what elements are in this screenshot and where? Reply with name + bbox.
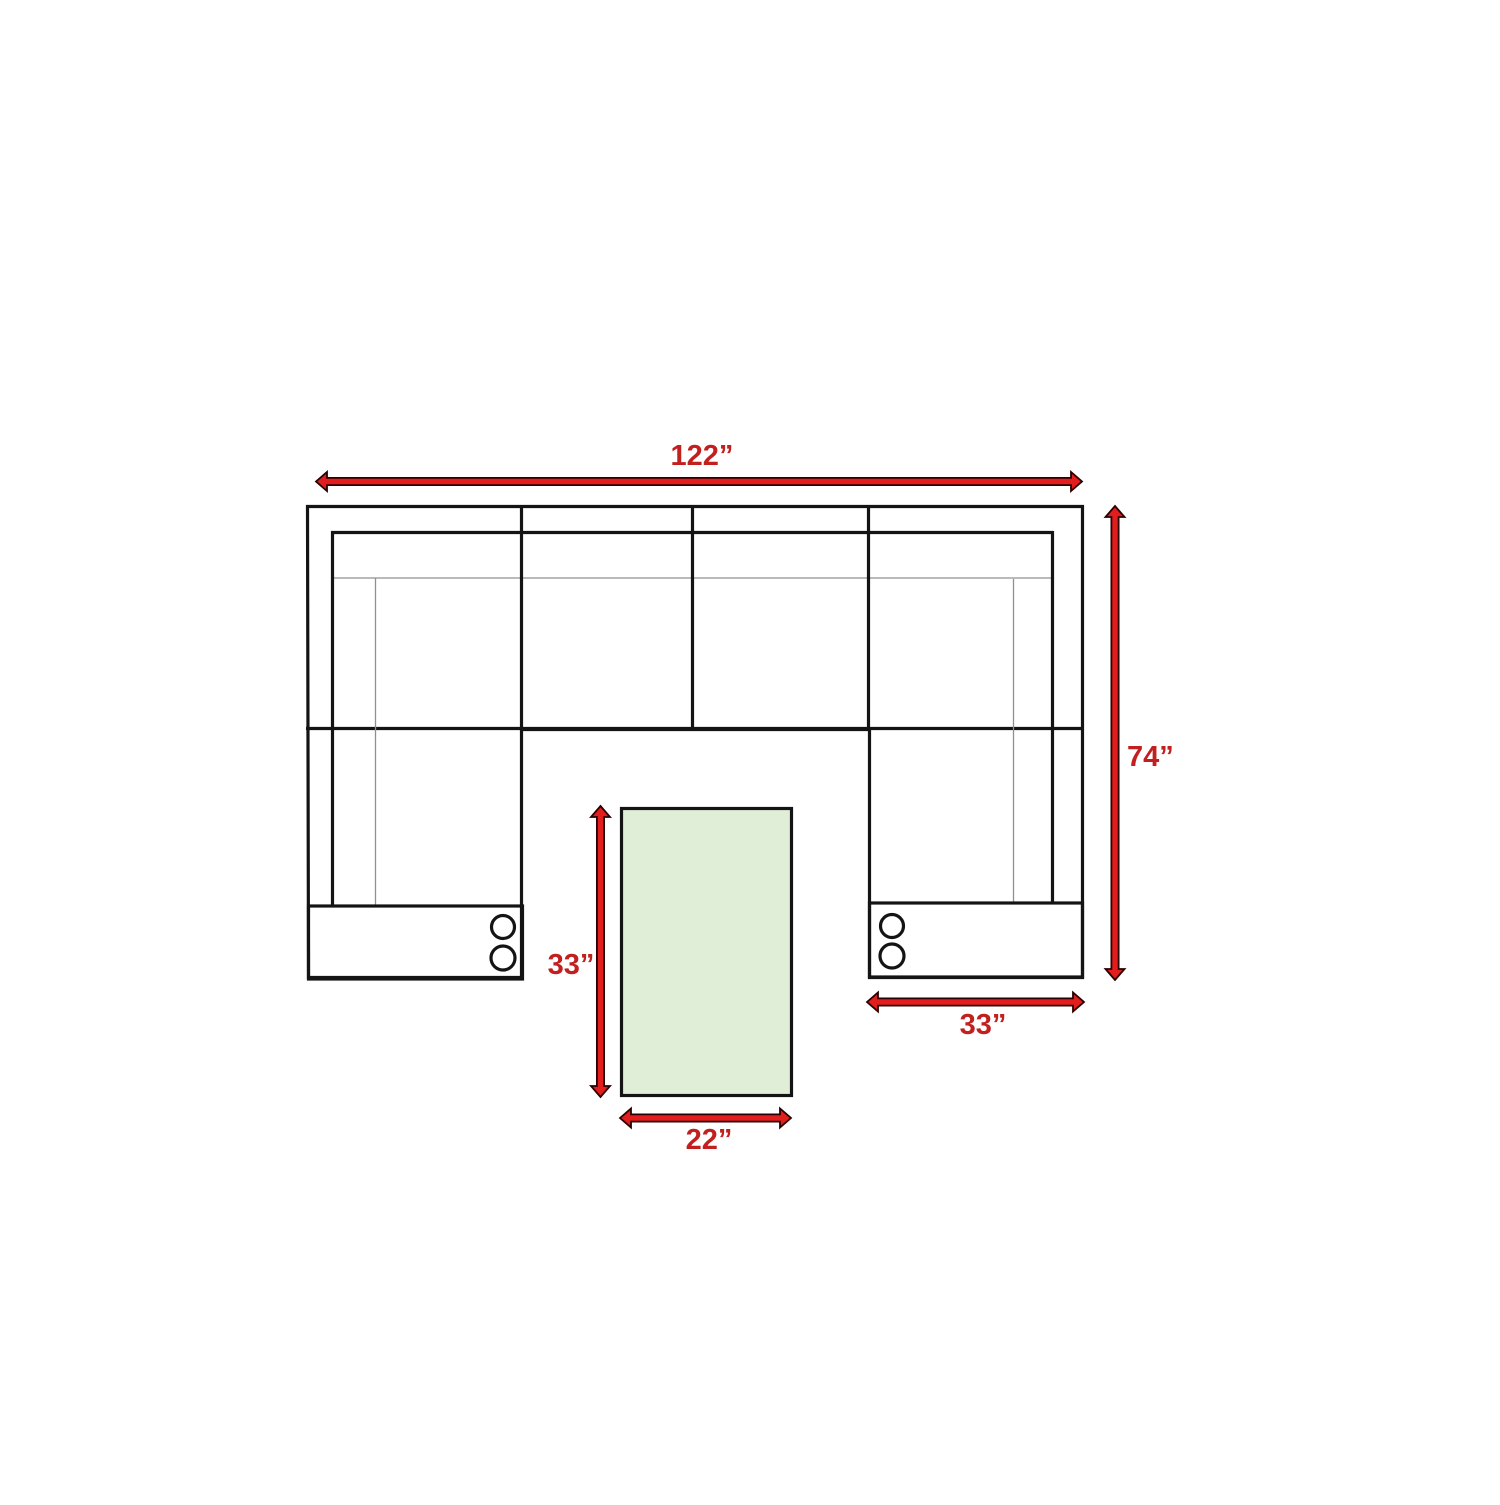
svg-text:33”: 33”: [960, 1009, 1007, 1041]
svg-text:122”: 122”: [671, 440, 734, 472]
svg-text:22”: 22”: [686, 1124, 733, 1156]
svg-text:33”: 33”: [548, 949, 595, 981]
svg-text:74”: 74”: [1127, 741, 1174, 773]
